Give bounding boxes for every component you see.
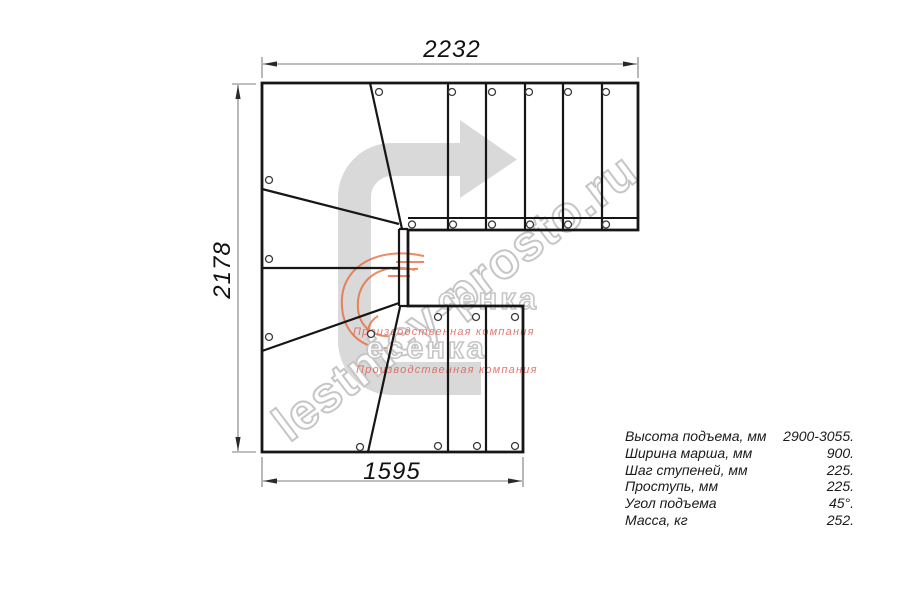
- spec-value: 2900-3055.: [783, 428, 854, 445]
- spec-label: Угол подъема: [625, 495, 717, 512]
- winder-tread-lines: [262, 83, 402, 452]
- screw-holes: [266, 89, 610, 451]
- lower-flight-tread-lines: [448, 306, 486, 452]
- spec-label: Ширина марша, мм: [625, 445, 752, 462]
- dimension-arrowheads: [235, 61, 637, 483]
- spec-row: Шаг ступеней, мм 225.: [625, 462, 854, 479]
- spec-table: Высота подъема, мм 2900-3055. Ширина мар…: [625, 428, 854, 529]
- spec-row: Высота подъема, мм 2900-3055.: [625, 428, 854, 445]
- spec-value: 225.: [827, 462, 854, 479]
- upper-flight-tread-lines: [448, 83, 602, 230]
- spec-value: 225.: [827, 478, 854, 495]
- spec-row: Масса, кг 252.: [625, 512, 854, 529]
- dimension-lines: [232, 57, 638, 487]
- spec-label: Шаг ступеней, мм: [625, 462, 748, 479]
- spec-label: Проступь, мм: [625, 478, 718, 495]
- spec-label: Высота подъема, мм: [625, 428, 767, 445]
- spec-value: 45°.: [829, 495, 854, 512]
- staircase-drawing-page: { "drawing": { "title_hint": "L-shaped s…: [0, 0, 900, 600]
- spec-row: Ширина марша, мм 900.: [625, 445, 854, 462]
- spec-label: Масса, кг: [625, 512, 688, 529]
- spec-row: Угол подъема 45°.: [625, 495, 854, 512]
- spec-value: 252.: [827, 512, 854, 529]
- dimension-bottom-width: 1595: [342, 458, 442, 486]
- dimension-left-height: 2178: [209, 205, 237, 335]
- spec-value: 900.: [827, 445, 854, 462]
- spec-row: Проступь, мм 225.: [625, 478, 854, 495]
- dimension-top-width: 2232: [402, 36, 502, 64]
